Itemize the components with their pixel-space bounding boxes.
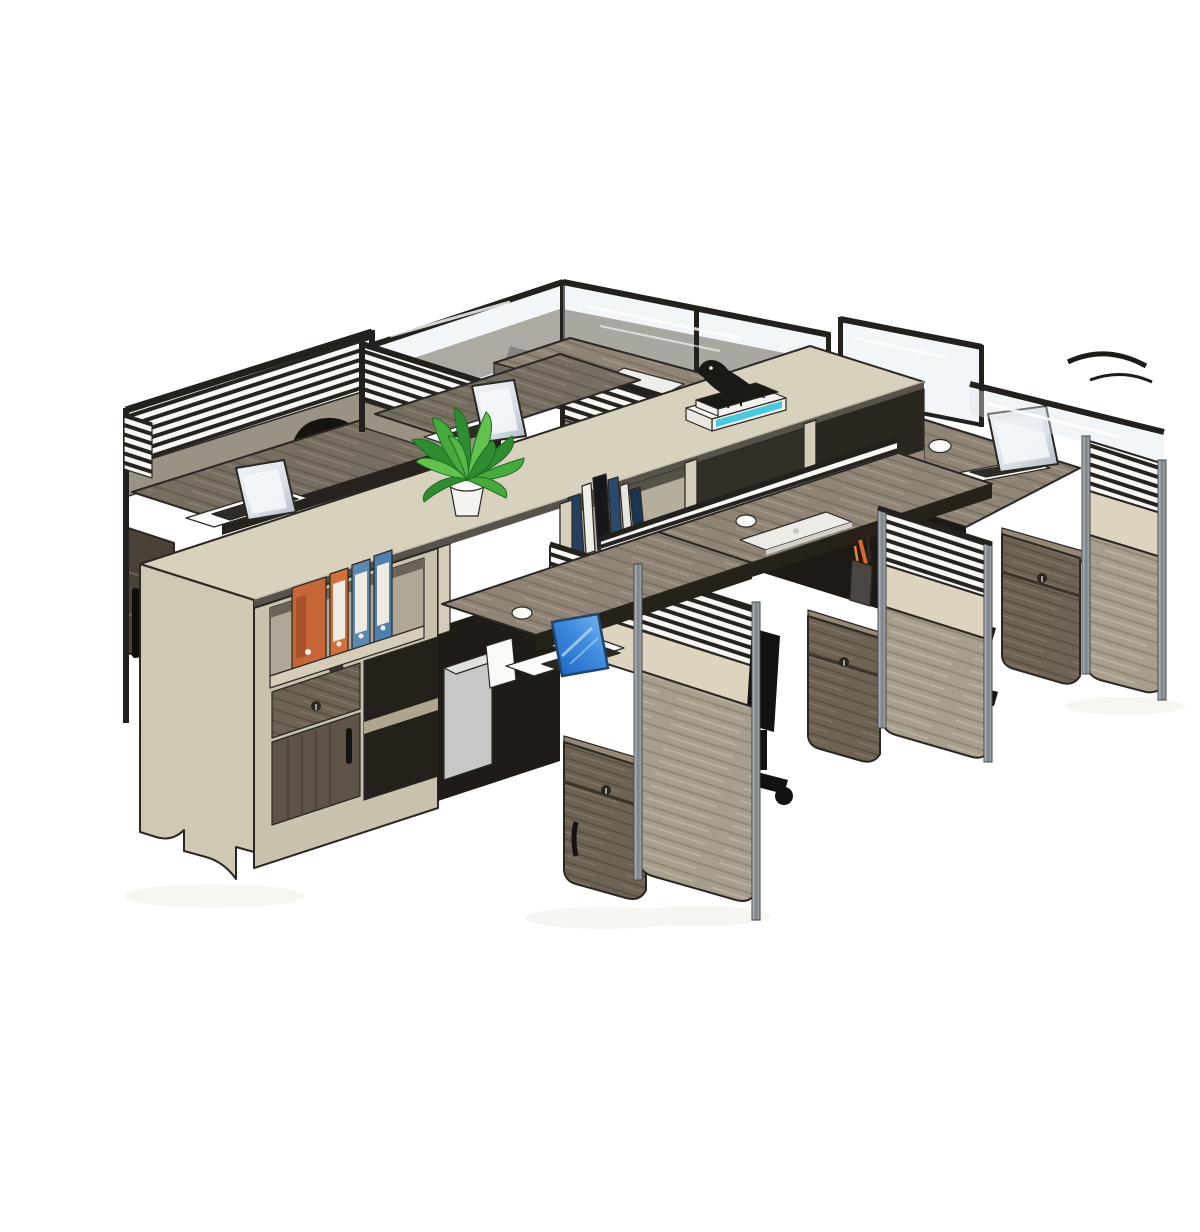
partition-a-return-louver bbox=[124, 414, 152, 478]
mouse-e bbox=[512, 607, 532, 619]
pedestal-f bbox=[808, 610, 886, 762]
pedestal-a-handle bbox=[132, 588, 139, 658]
product-photo-office-workstation: Isometric product render of a six-person… bbox=[40, 16, 1200, 1216]
mouse-d bbox=[929, 440, 951, 453]
partition-d-right-wood-panel bbox=[1086, 534, 1164, 692]
spine-side-cavity bbox=[364, 637, 438, 800]
mouse-f bbox=[736, 515, 756, 527]
pen-cup-body bbox=[850, 560, 872, 606]
pedestal-e-handle bbox=[574, 822, 576, 856]
spine-drawer-unit bbox=[272, 663, 360, 825]
pedestal-d bbox=[1002, 528, 1086, 684]
workstation-illustration bbox=[40, 16, 1200, 1216]
partition-f-right bbox=[878, 508, 992, 762]
spine-end-cabinet bbox=[140, 564, 254, 879]
paper-sheet bbox=[486, 638, 516, 688]
laptop-e-screen bbox=[552, 614, 608, 676]
laptop-a-screen bbox=[236, 460, 296, 520]
partition-a-floor-post bbox=[123, 503, 129, 723]
glass-reflection-swoosh bbox=[1068, 354, 1146, 366]
partition-e-right-wood-panel bbox=[638, 670, 756, 901]
spine-door-handle bbox=[346, 728, 352, 764]
